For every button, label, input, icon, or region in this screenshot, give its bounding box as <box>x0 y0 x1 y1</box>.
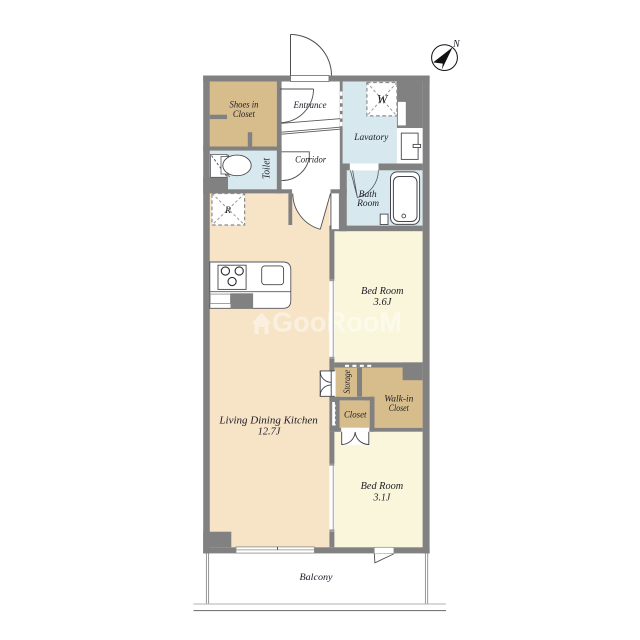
svg-text:Lavatory: Lavatory <box>353 133 389 143</box>
svg-text:Closet: Closet <box>233 110 255 120</box>
svg-text:Corridor: Corridor <box>295 155 326 165</box>
svg-text:Toilet: Toilet <box>261 158 272 179</box>
svg-text:Entrance: Entrance <box>293 101 327 111</box>
svg-text:Closet: Closet <box>389 404 409 414</box>
svg-text:3.1J: 3.1J <box>373 492 392 504</box>
svg-text:Storage: Storage <box>342 370 352 394</box>
svg-text:Balcony: Balcony <box>300 573 334 583</box>
svg-text:W: W <box>377 92 389 106</box>
svg-text:N: N <box>452 39 461 50</box>
svg-text:Bed Room: Bed Room <box>361 480 404 492</box>
svg-text:Room: Room <box>356 199 379 209</box>
svg-text:3.6J: 3.6J <box>373 296 393 308</box>
svg-text:Closet: Closet <box>344 410 367 420</box>
svg-text:12.7J: 12.7J <box>258 426 282 438</box>
svg-text:GooRooM: GooRooM <box>272 307 402 338</box>
svg-text:R: R <box>224 206 231 216</box>
